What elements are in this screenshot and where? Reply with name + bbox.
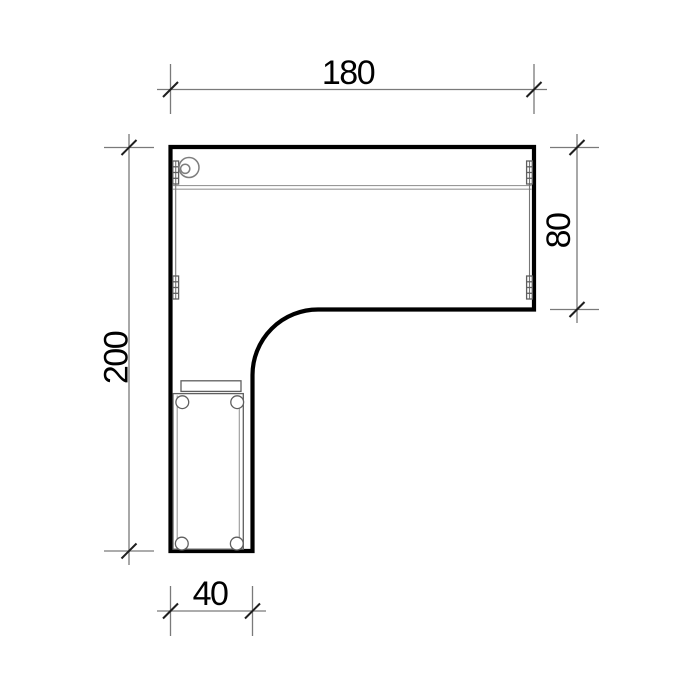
pedestal-unit	[173, 381, 244, 550]
dimension-left: 200	[98, 134, 155, 565]
technical-drawing-canvas: 180 80 200 40	[0, 0, 700, 700]
grommet-inner-circle	[181, 164, 190, 173]
dimension-label-right: 80	[540, 213, 578, 248]
corner-desk-plan-drawing: 180 80 200 40	[0, 0, 700, 700]
caster-top-left	[176, 396, 189, 409]
dimension-bottom: 40	[157, 575, 266, 636]
dimension-label-bottom: 40	[193, 575, 228, 613]
tray-rect	[181, 381, 241, 392]
caster-bottom-right	[230, 537, 243, 550]
desk-outline	[171, 147, 535, 551]
caster-bottom-left	[175, 537, 188, 550]
dimension-label-left: 200	[98, 331, 136, 384]
caster-top-right	[231, 396, 244, 409]
dimension-top: 180	[157, 54, 547, 114]
dimension-label-top: 180	[322, 54, 375, 92]
dimension-right: 80	[540, 134, 599, 323]
pedestal-body	[173, 394, 243, 550]
desk-body	[171, 147, 535, 551]
